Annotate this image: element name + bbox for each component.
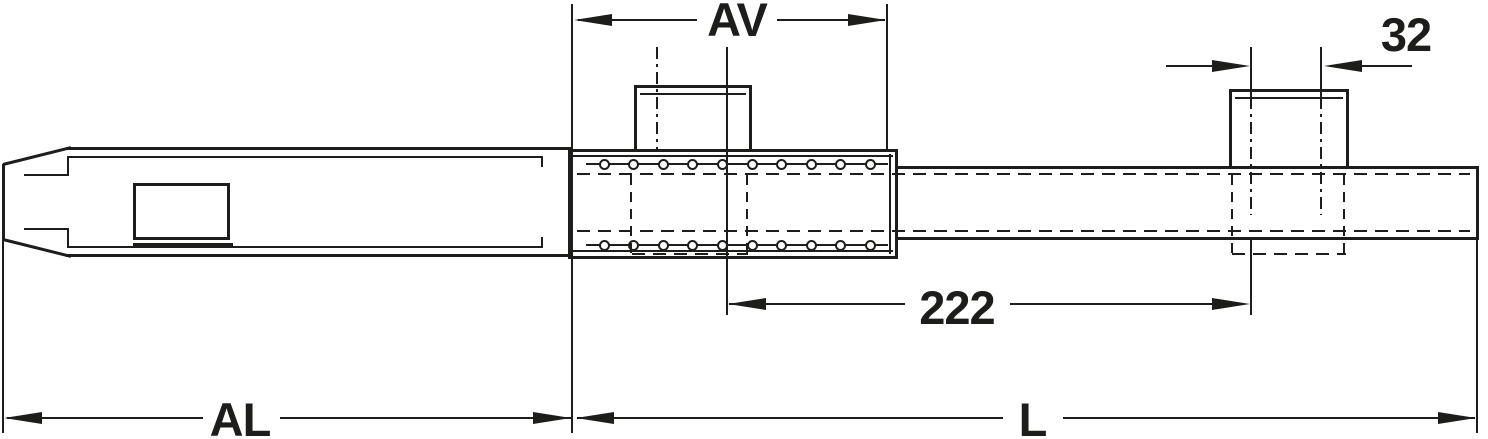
perforation-hole <box>865 240 876 251</box>
l-arrow-right <box>1438 412 1476 424</box>
dim32-line-right <box>1360 65 1412 67</box>
perforation-hole <box>687 240 698 251</box>
al-arrow-left <box>4 412 42 424</box>
tube-inner-bottom-step <box>67 228 69 248</box>
l-dim-line-right <box>1063 417 1475 419</box>
perforation-hole <box>835 240 846 251</box>
perforation-hole <box>747 159 758 170</box>
extension-line-left-end <box>2 240 4 433</box>
tube-inner-bottom-end-tick <box>541 237 543 248</box>
right-block-centerline-2 <box>1320 97 1322 215</box>
tube-tip-edge <box>2 164 5 241</box>
av-dim-label: AV <box>697 0 777 43</box>
perforated-sleeve <box>568 149 898 259</box>
tube-inner-top-line <box>67 156 543 158</box>
hidden-bore-top-line <box>577 173 1470 175</box>
sleeve-inner-right-line <box>889 154 891 254</box>
tube-tip-inner-top-line <box>24 174 69 176</box>
tube-window-cutout <box>133 183 230 240</box>
perforation-hole <box>599 240 610 251</box>
perforation-hole <box>658 159 669 170</box>
perforation-hole <box>628 159 639 170</box>
perforation-hole <box>806 240 817 251</box>
dim32-arrow-left <box>1212 60 1250 72</box>
tube-bottom-edge <box>66 254 573 257</box>
perforation-hole <box>835 159 846 170</box>
dim32-line-left <box>1166 65 1214 67</box>
extension-line-al-l-boundary <box>571 4 573 433</box>
right-block-centerline-1 <box>1250 97 1252 215</box>
tube-top-edge <box>66 147 573 150</box>
perforation-hole <box>747 240 758 251</box>
tube-chamfer-top <box>3 146 72 166</box>
perforation-hole <box>687 159 698 170</box>
right-block-extension-222 <box>1250 240 1252 315</box>
hidden-bore-bottom-line <box>577 230 1470 232</box>
tube-window-bottom-bar <box>133 243 233 248</box>
perforation-hole <box>776 159 787 170</box>
sleeve-inner-top-line <box>573 155 893 157</box>
tube-chamfer-bottom <box>3 238 72 258</box>
dim32-label: 32 <box>1370 11 1442 58</box>
tube-tip-inner-bottom-line <box>24 228 69 230</box>
perforation-hole <box>865 159 876 170</box>
tube-inner-top-end-tick <box>541 156 543 167</box>
sleeve-inner-bottom-line <box>573 250 893 252</box>
left-block-centerline-1 <box>656 47 658 150</box>
hidden-left-tenon-left-edge <box>630 175 632 257</box>
rod <box>895 166 1479 240</box>
av-arrow-left <box>574 14 612 26</box>
hidden-left-tenon-bottom-edge <box>632 253 748 255</box>
extension-line-right-end <box>1476 240 1478 433</box>
dim32-arrow-right <box>1324 60 1362 72</box>
left-block-centerline-2-extension-222 <box>726 47 728 315</box>
dim222-arrow-right <box>1212 298 1250 310</box>
dim222-arrow-left <box>728 298 766 310</box>
hidden-right-tenon-left-edge <box>1231 175 1233 256</box>
perforation-hole <box>599 159 610 170</box>
right-block-centerline-1-upper <box>1250 47 1252 97</box>
dim222-label: 222 <box>907 284 1007 331</box>
tube-inner-top-step <box>67 156 69 176</box>
extension-line-av-right <box>886 4 888 151</box>
al-dim-label: AL <box>200 396 280 439</box>
al-arrow-right <box>533 412 571 424</box>
hidden-left-tenon-right-edge <box>746 175 748 257</box>
perforation-hole <box>806 159 817 170</box>
right-mounting-block <box>1229 89 1349 168</box>
perforation-hole <box>658 240 669 251</box>
right-block-centerline-2-upper <box>1320 47 1322 97</box>
al-dim-line-right <box>280 417 571 419</box>
av-arrow-right <box>848 14 886 26</box>
dim222-line-right <box>1010 303 1214 305</box>
l-dim-label: L <box>995 396 1070 439</box>
technical-drawing: AV 32 222 AL L <box>0 0 1488 439</box>
l-arrow-left <box>576 412 614 424</box>
hidden-right-tenon-right-edge <box>1343 175 1345 256</box>
perforation-hole <box>776 240 787 251</box>
l-dim-line-left <box>577 417 1003 419</box>
